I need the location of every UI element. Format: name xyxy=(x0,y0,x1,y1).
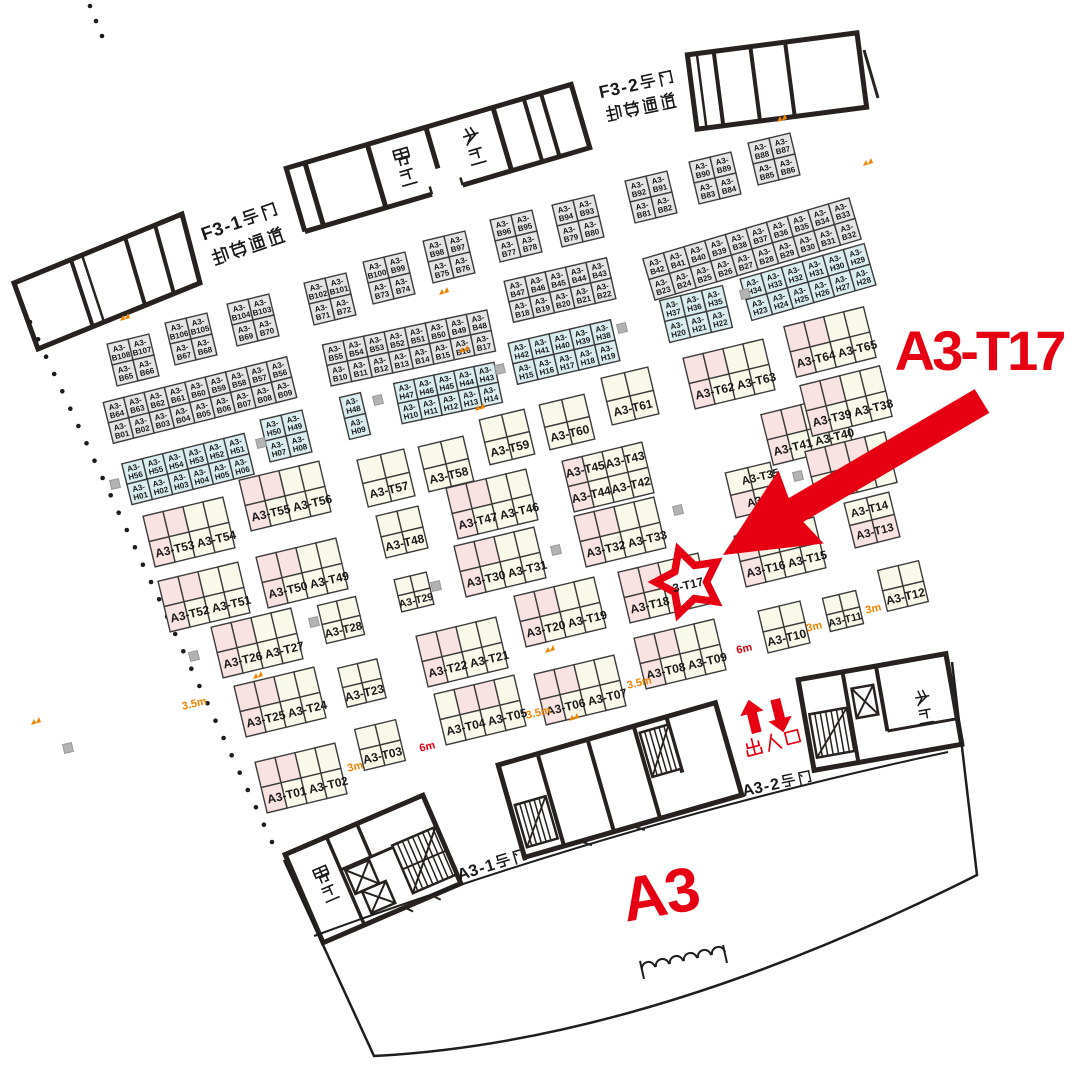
svg-text:A3-T17: A3-T17 xyxy=(895,319,1065,382)
svg-text:A3: A3 xyxy=(616,854,704,935)
